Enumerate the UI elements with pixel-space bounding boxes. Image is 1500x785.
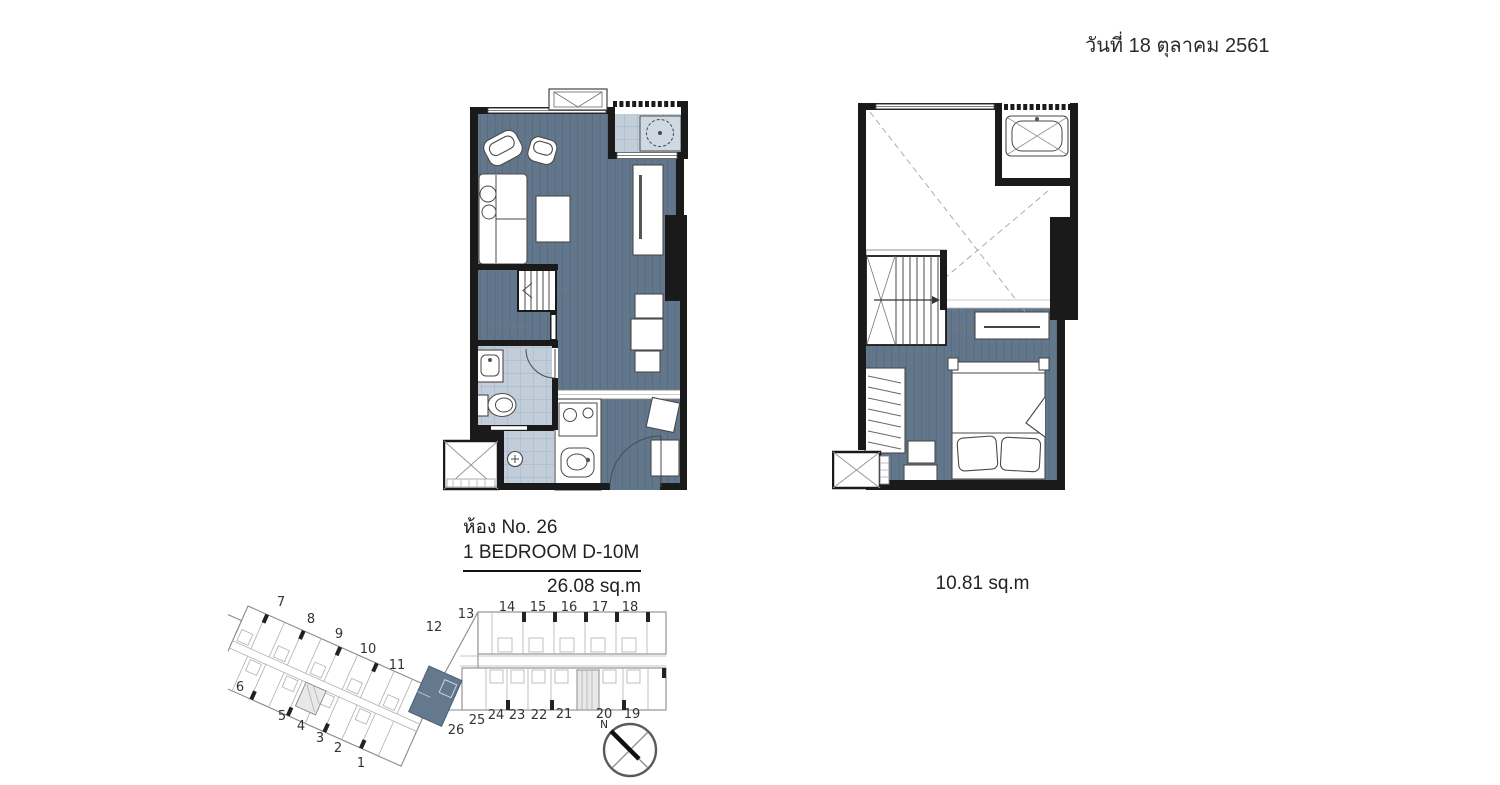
bed [948, 358, 1049, 479]
unit-15: 15 [530, 600, 547, 615]
compass: N [600, 719, 656, 776]
floor-plan-sheet: วันที่ 18 ตุลาคม 2561 [0, 0, 1500, 785]
site-wing-left [228, 597, 435, 766]
tv-console [633, 165, 663, 255]
site-wing-right [460, 612, 666, 710]
unit-7: 7 [277, 595, 285, 610]
shaft-upper [833, 452, 889, 488]
tv-console-upper [975, 312, 1049, 339]
unit-25: 25 [469, 713, 486, 728]
unit-18: 18 [622, 600, 639, 615]
bedroom-ledge [945, 300, 1057, 308]
unit-14: 14 [499, 600, 516, 615]
unit-17: 17 [592, 600, 609, 615]
site-plan: 7 8 9 10 11 6 5 4 3 2 1 12 13 14 15 16 1… [228, 592, 673, 785]
unit-2: 2 [334, 741, 342, 756]
louvre-vent [1004, 104, 1072, 110]
dining-set [631, 294, 663, 372]
stairs-down [866, 250, 946, 345]
unit-4: 4 [297, 719, 305, 734]
unit-10: 10 [360, 642, 377, 657]
lower-floor-plan: UP STORAGE [443, 88, 693, 500]
unit-12: 12 [426, 620, 443, 635]
wardrobe [865, 368, 905, 453]
sofa [479, 174, 527, 264]
unit-23: 23 [509, 708, 526, 723]
coffee-table [536, 196, 570, 242]
unit-11: 11 [389, 658, 406, 673]
unit-19: 19 [624, 707, 641, 722]
compass-north-label: N [600, 719, 608, 731]
ac-vent-box [549, 89, 607, 110]
louvre-vent [613, 101, 681, 107]
unit-room-label: ห้อง No. 26 [463, 517, 641, 540]
unit-8: 8 [307, 612, 315, 627]
unit-area-upper: 10.81 sq.m [925, 573, 1040, 595]
stairs-up [518, 270, 556, 311]
unit-21: 21 [556, 707, 573, 722]
unit-22: 22 [531, 708, 548, 723]
unit-24: 24 [488, 708, 505, 723]
unit-9: 9 [335, 627, 343, 642]
storage-label: STORAGE [493, 322, 527, 330]
divider-line [463, 570, 641, 572]
unit-info-block: ห้อง No. 26 1 BEDROOM D-10M 26.08 sq.m [463, 517, 641, 598]
shaft-lower [444, 441, 498, 489]
upper-floor-plan: DOWN [832, 95, 1082, 495]
down-label: DOWN [949, 325, 972, 333]
unit-16: 16 [561, 600, 578, 615]
unit-5: 5 [278, 709, 286, 724]
up-label: UP [559, 287, 569, 295]
date-label: วันที่ 18 ตุลาคม 2561 [1085, 29, 1270, 61]
unit-6: 6 [236, 680, 244, 695]
ac-ledge-unit [1006, 116, 1068, 156]
unit-26: 26 [448, 723, 465, 738]
unit-3: 3 [316, 731, 324, 746]
balcony-condenser [640, 116, 681, 151]
unit-type-label: 1 BEDROOM D-10M [463, 542, 641, 565]
unit-13: 13 [458, 607, 475, 622]
unit-1: 1 [357, 756, 365, 771]
